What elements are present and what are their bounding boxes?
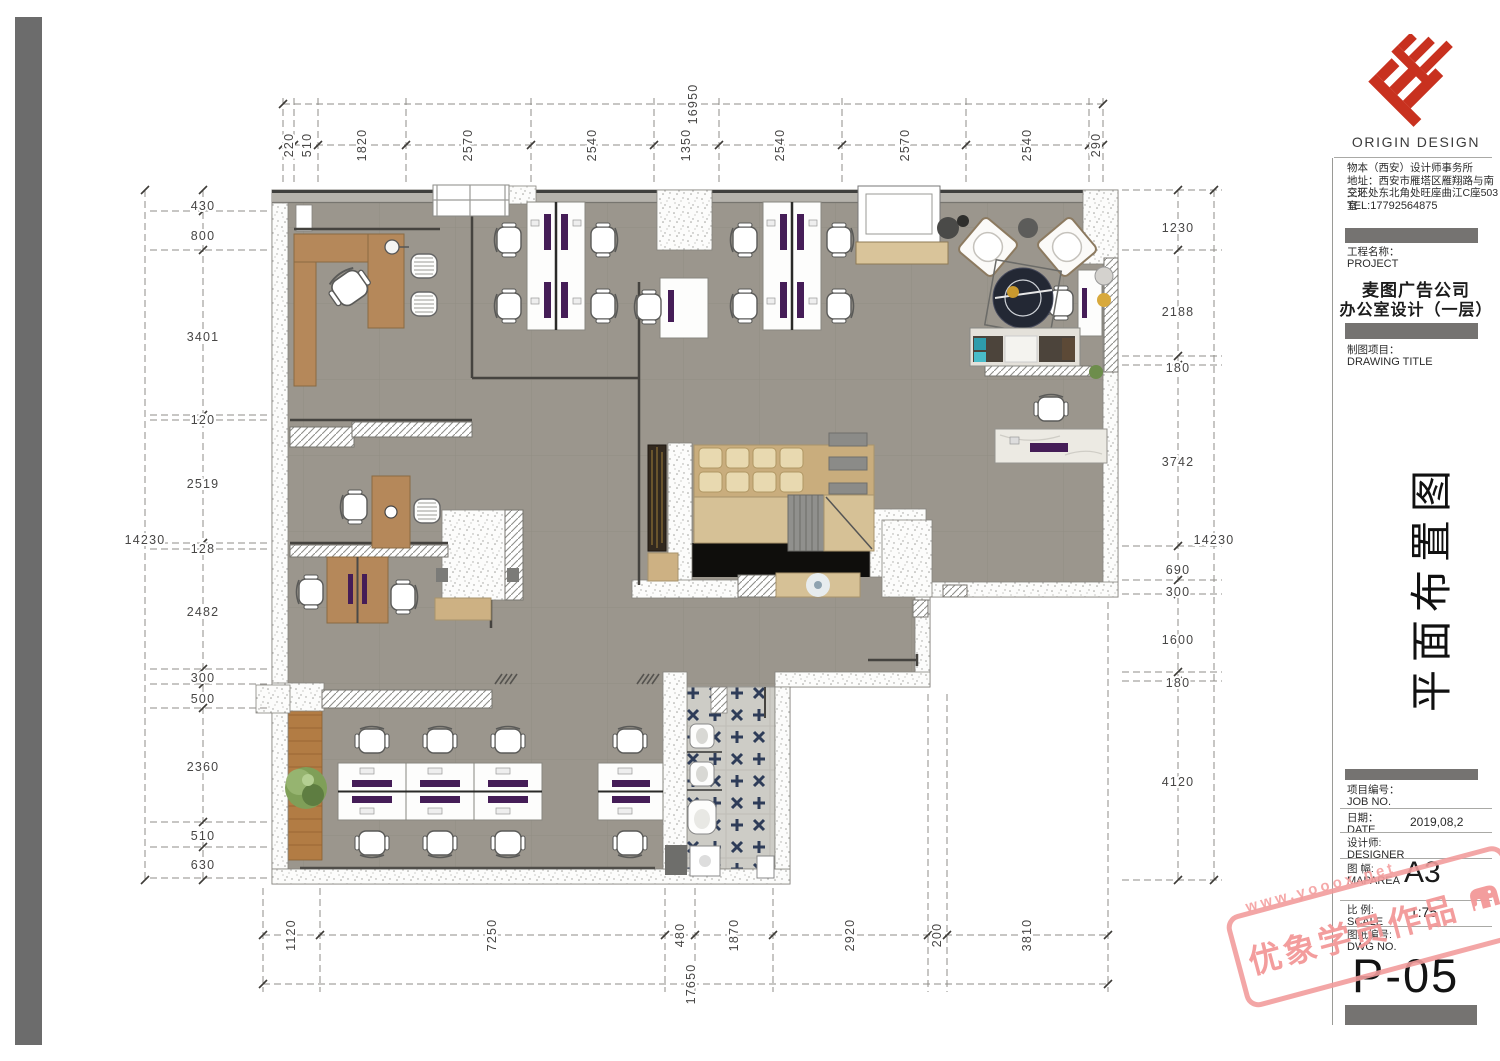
brand-name: ORIGIN DESIGN: [1340, 134, 1492, 150]
dim-label: 14230: [1194, 533, 1235, 547]
job-label-cn: 项目编号：: [1347, 784, 1400, 797]
dim-label: 2482: [187, 605, 220, 619]
single-desk: [660, 278, 708, 338]
designer-label-en: DESIGNER: [1347, 849, 1404, 862]
pendant-light: [937, 217, 959, 239]
drawing-title-vertical: 平面布置图: [1398, 472, 1442, 712]
dim-label: 3742: [1162, 455, 1195, 469]
desk-lamp: [385, 240, 399, 254]
dim-label: 180: [1166, 361, 1190, 375]
dim-label: 800: [191, 229, 215, 243]
dim-label: 2540: [773, 129, 787, 162]
dim-label: 2540: [1020, 129, 1034, 162]
dim-label: 510: [191, 829, 215, 843]
drawing-label-en: DRAWING TITLE: [1347, 356, 1433, 369]
dim-label: 4120: [1162, 775, 1195, 789]
dim-label: 300: [1166, 585, 1190, 599]
drawing-label-cn: 制图项目：: [1347, 344, 1400, 357]
dim-label: 2920: [843, 919, 857, 952]
dim-label: 128: [191, 542, 215, 556]
dim-label: 2519: [187, 477, 220, 491]
dim-label: 2360: [187, 760, 220, 774]
dim-label: 1230: [1162, 221, 1195, 235]
gray-cabinets: [829, 433, 867, 494]
dim-label: 16950: [686, 84, 700, 125]
dim-label: 510: [300, 133, 314, 157]
section-bar: [1345, 1005, 1477, 1025]
dim-label: 1600: [1162, 633, 1195, 647]
date-label-cn: 日期：: [1347, 812, 1379, 825]
dim-label: 2570: [461, 129, 475, 162]
section-bar: [1345, 323, 1478, 339]
date-label-en: DATE: [1347, 824, 1376, 837]
project-label-en: PROJECT: [1347, 258, 1398, 271]
entry-cabinet: [856, 242, 948, 264]
basin: [757, 856, 774, 878]
date-value: 2019,08,2: [1410, 816, 1463, 829]
dim-label: 2188: [1162, 305, 1195, 319]
origin-design-logo: [1352, 34, 1464, 144]
dim-label: 1350: [679, 129, 693, 162]
row-divider: [1340, 808, 1492, 809]
dim-label: 480: [673, 923, 687, 947]
wood-cabinet: [435, 598, 491, 620]
dim-label: 2570: [898, 129, 912, 162]
dim-label: 690: [1166, 563, 1190, 577]
dim-label: 300: [191, 671, 215, 685]
dim-label: 2540: [585, 129, 599, 162]
plant: [285, 767, 327, 809]
dim-label: 3401: [187, 330, 220, 344]
dim-label: 1820: [355, 129, 369, 162]
row-divider: [1340, 832, 1492, 833]
dim-label: 430: [191, 199, 215, 213]
dim-label: 14230: [125, 533, 166, 547]
section-bar: [1345, 228, 1478, 243]
dim-label: 290: [1089, 133, 1103, 157]
duct: [665, 845, 687, 875]
job-label-en: JOB NO.: [1347, 796, 1391, 809]
dim-label: 120: [191, 413, 215, 427]
dim-label: 3810: [1020, 919, 1034, 952]
dim-label: 630: [191, 858, 215, 872]
guest-chair: [411, 254, 437, 278]
desk-cluster: [527, 202, 585, 330]
firm-tel: TEL:17792564875: [1347, 200, 1438, 213]
dim-label: 180: [1166, 676, 1190, 690]
dim-label: 220: [282, 133, 296, 157]
project-label-cn: 工程名称：: [1347, 246, 1400, 259]
firm-name: 物本（西安）设计师事务所: [1347, 162, 1473, 175]
project-name-2: 办公室设计（一层）: [1336, 296, 1496, 320]
dim-label: 1870: [727, 919, 741, 952]
elephant-icon: [1461, 876, 1500, 919]
dim-label: 200: [930, 923, 944, 947]
section-bar: [1345, 769, 1478, 780]
dim-label: 17650: [684, 964, 698, 1005]
dim-label: 1120: [284, 919, 298, 951]
divider: [1334, 157, 1492, 158]
designer-label-cn: 设计师:: [1347, 837, 1381, 850]
desk-cluster: [763, 202, 821, 330]
guest-chair: [411, 292, 437, 316]
desk-row: [338, 763, 663, 820]
dim-label: 7250: [485, 919, 499, 952]
wood-counter: [694, 497, 788, 543]
sofa: [970, 328, 1080, 366]
plant: [1089, 365, 1103, 379]
pendant-light: [1018, 218, 1038, 238]
dim-label: 500: [191, 692, 215, 706]
